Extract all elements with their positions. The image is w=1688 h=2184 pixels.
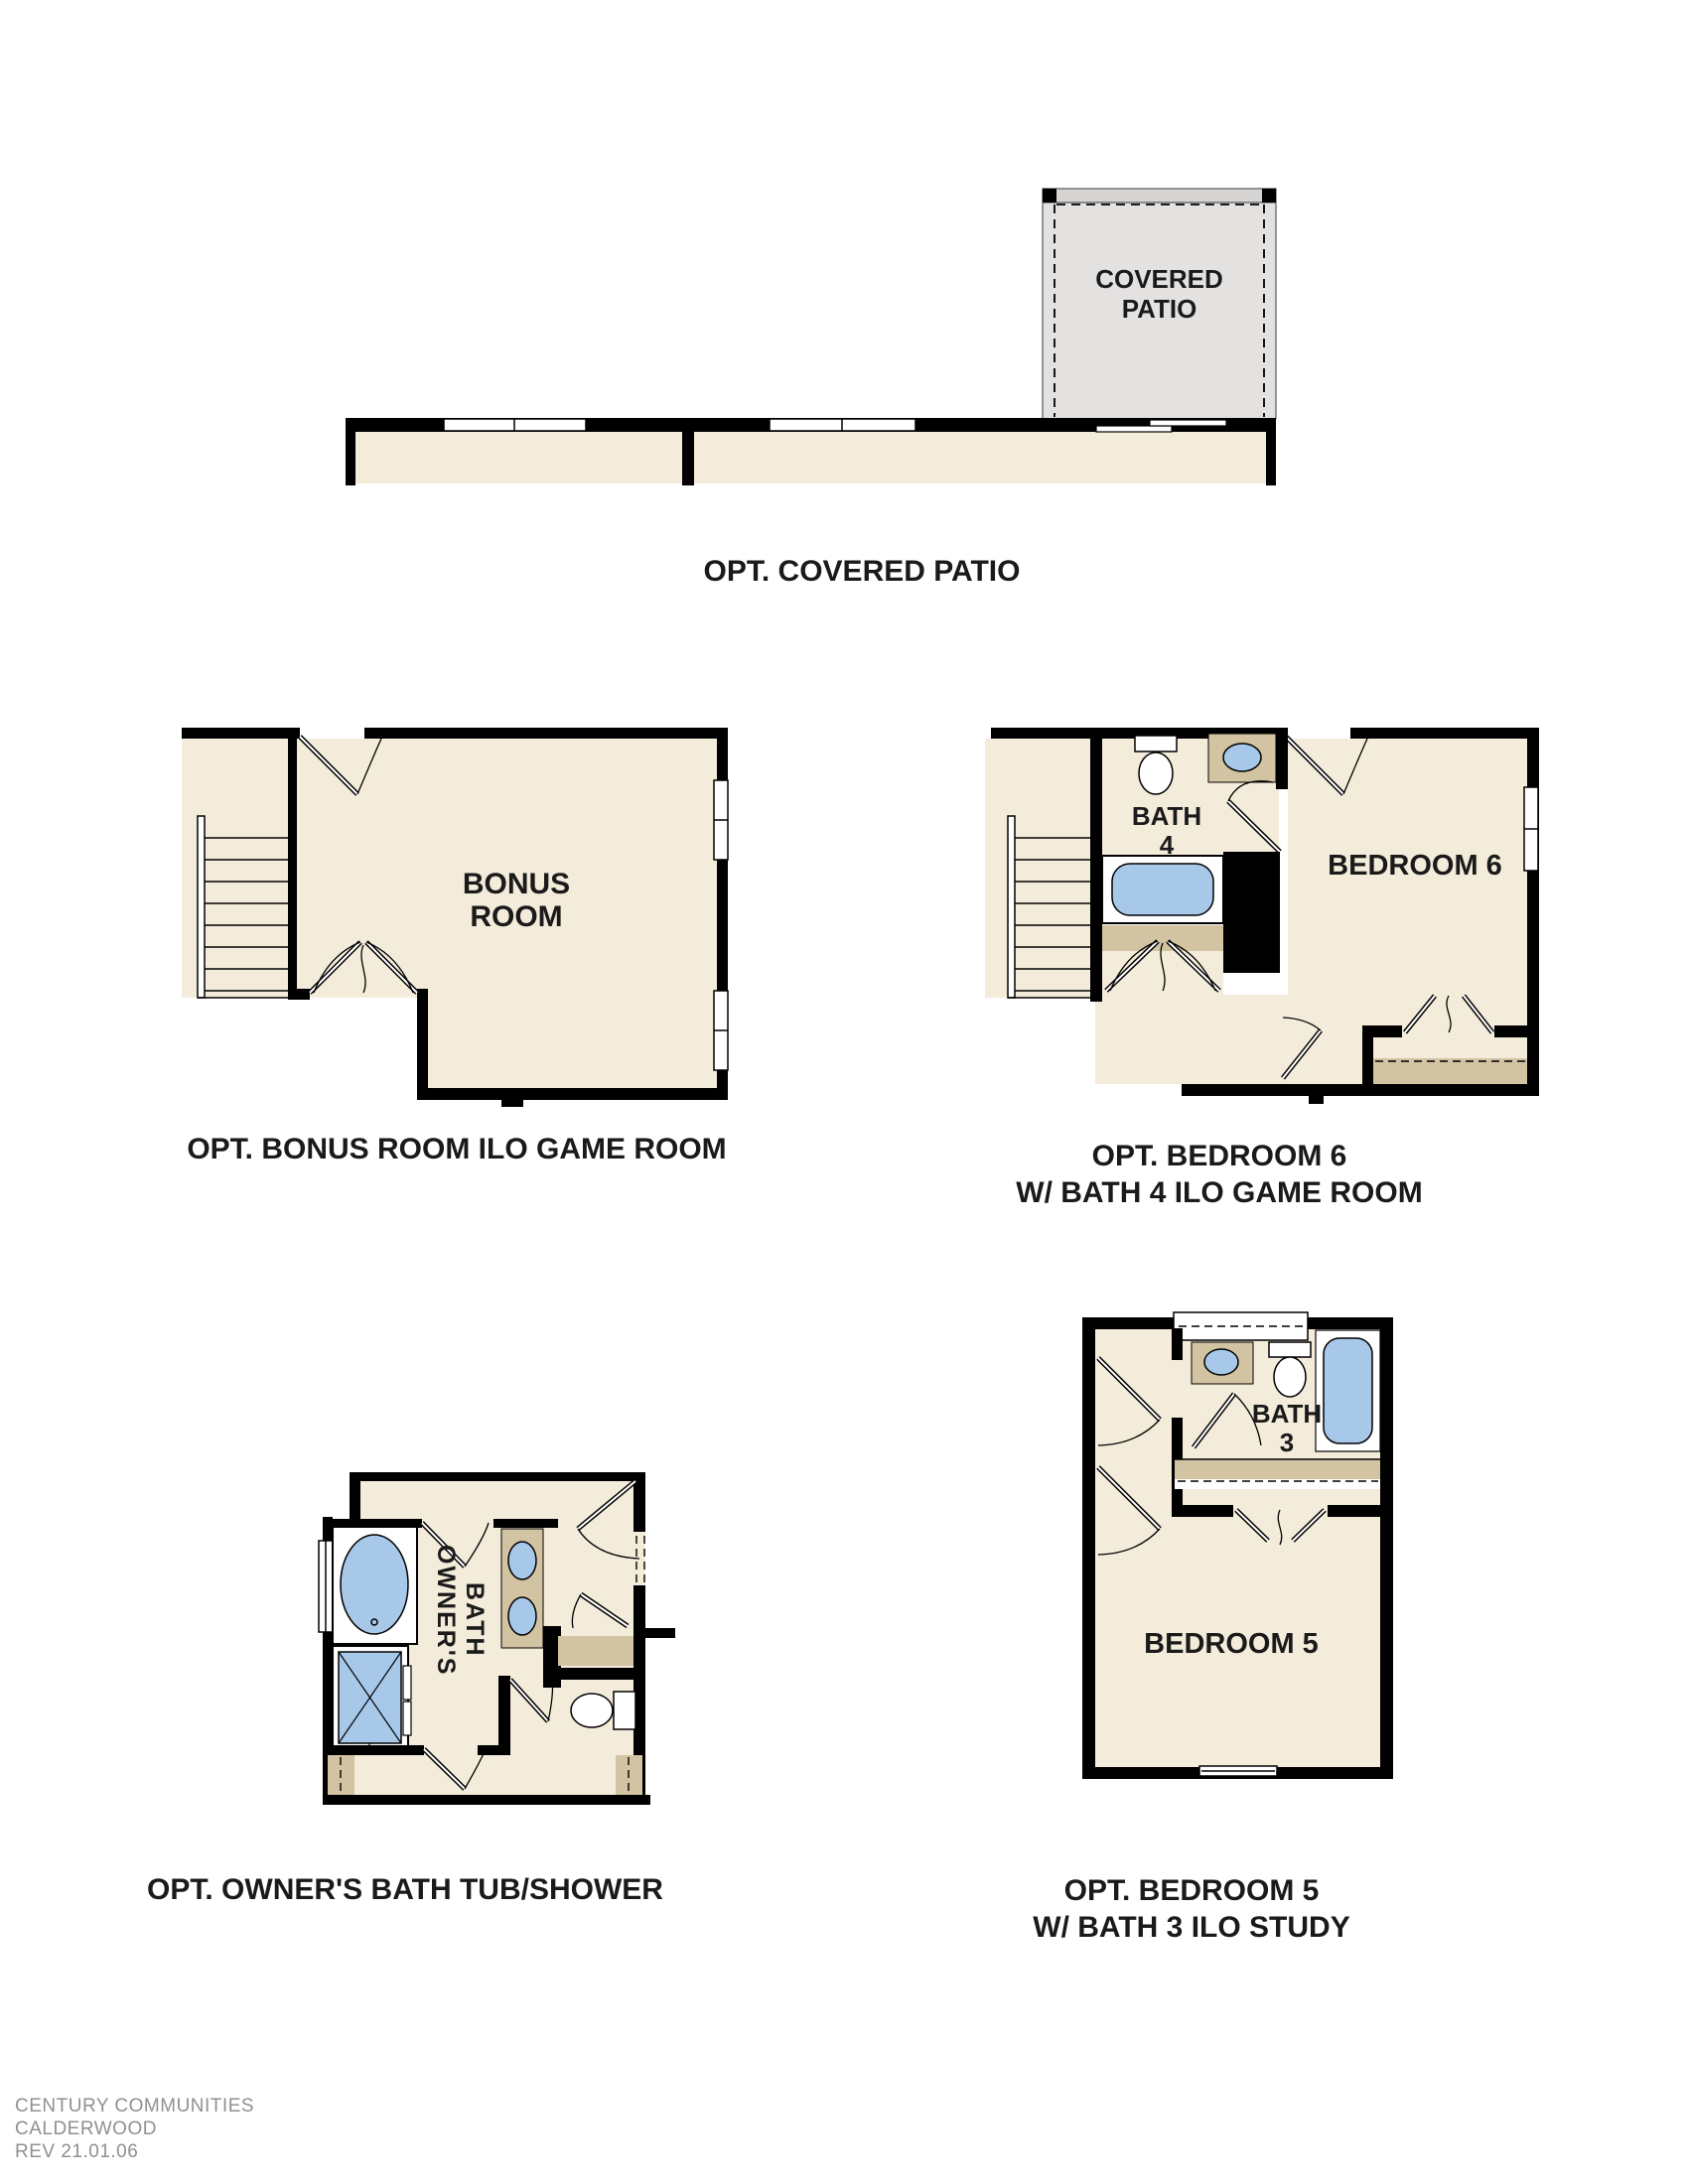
covered-patio-room-label-line2: PATIO: [1043, 294, 1276, 324]
footer-plan-name: CALDERWOOD: [15, 2117, 254, 2140]
bonus-room-caption-text: OPT. BONUS ROOM ILO GAME ROOM: [104, 1132, 809, 1167]
covered-patio-caption-text: OPT. COVERED PATIO: [564, 554, 1160, 590]
window-icon: [444, 419, 586, 431]
owners-bath-caption-text: OPT. OWNER'S BATH TUB/SHOWER: [107, 1872, 703, 1908]
closet-shelf-icon: [1174, 1312, 1308, 1340]
closet-shelf-icon: [1175, 1459, 1380, 1489]
bedroom6-room-label-text: BEDROOM 6: [1291, 850, 1539, 882]
bath4-room-label: BATH 4: [1112, 802, 1221, 860]
owners-bath-room-label-line1: OWNER'S: [431, 1545, 460, 1676]
bedroom5-caption-line1: OPT. BEDROOM 5: [894, 1872, 1489, 1909]
shower-icon: [333, 1646, 411, 1755]
bath4-label-line2: 4: [1112, 831, 1221, 860]
sink-icon: [1192, 1342, 1253, 1384]
window-icon: [714, 991, 728, 1070]
bathtub-icon: [1102, 856, 1223, 923]
bonus-room-label: BONUS ROOM: [407, 868, 626, 933]
bath3-label-line2: 3: [1237, 1429, 1336, 1457]
footer-builder-name: CENTURY COMMUNITIES: [15, 2095, 254, 2117]
bedroom6-caption: OPT. BEDROOM 6 W/ BATH 4 ILO GAME ROOM: [921, 1138, 1517, 1211]
owners-bath-drawing: [319, 1472, 675, 1805]
floorplan-sheet: COVERED PATIO BONUS ROOM BEDROOM 6 BATH …: [0, 0, 1688, 2184]
sink-icon: [1208, 734, 1276, 782]
owners-bath-caption: OPT. OWNER'S BATH TUB/SHOWER: [107, 1872, 703, 1908]
floorplan-drawing-layer: [0, 0, 1688, 2184]
window-icon: [770, 419, 915, 431]
footer-revision: REV 21.01.06: [15, 2140, 254, 2163]
bedroom5-room-label-text: BEDROOM 5: [1107, 1628, 1355, 1660]
bathtub-icon: [333, 1527, 417, 1644]
bonus-room-caption: OPT. BONUS ROOM ILO GAME ROOM: [104, 1132, 809, 1167]
bedroom6-room-label: BEDROOM 6: [1291, 850, 1539, 882]
window-icon: [714, 780, 728, 860]
covered-patio-room-label: COVERED PATIO: [1043, 264, 1276, 324]
bedroom5-caption-line2: W/ BATH 3 ILO STUDY: [894, 1909, 1489, 1946]
bath3-room-label: BATH 3: [1237, 1400, 1336, 1457]
sheet-footer: CENTURY COMMUNITIES CALDERWOOD REV 21.01…: [15, 2095, 254, 2163]
covered-patio-caption: OPT. COVERED PATIO: [564, 554, 1160, 590]
double-sink-vanity-icon: [501, 1529, 543, 1648]
covered-patio-drawing: [346, 189, 1276, 485]
toilet-icon: [571, 1692, 635, 1729]
bonus-room-label-line2: ROOM: [407, 900, 626, 933]
toilet-icon: [1135, 736, 1177, 794]
owners-bath-room-label-line2: BATH: [460, 1582, 489, 1658]
bath3-label-line1: BATH: [1237, 1400, 1336, 1429]
covered-patio-room-label-line1: COVERED: [1043, 264, 1276, 294]
bedroom5-room-label: BEDROOM 5: [1107, 1628, 1355, 1660]
bedroom5-caption: OPT. BEDROOM 5 W/ BATH 3 ILO STUDY: [894, 1872, 1489, 1946]
bedroom6-caption-line2: W/ BATH 4 ILO GAME ROOM: [921, 1174, 1517, 1211]
window-icon: [1199, 1766, 1277, 1776]
bath4-label-line1: BATH: [1112, 802, 1221, 831]
window-icon: [319, 1541, 333, 1632]
bedroom5-drawing: [1082, 1312, 1393, 1779]
bedroom6-drawing: [985, 728, 1539, 1104]
bonus-room-label-line1: BONUS: [407, 868, 626, 900]
bedroom6-caption-line1: OPT. BEDROOM 6: [921, 1138, 1517, 1174]
